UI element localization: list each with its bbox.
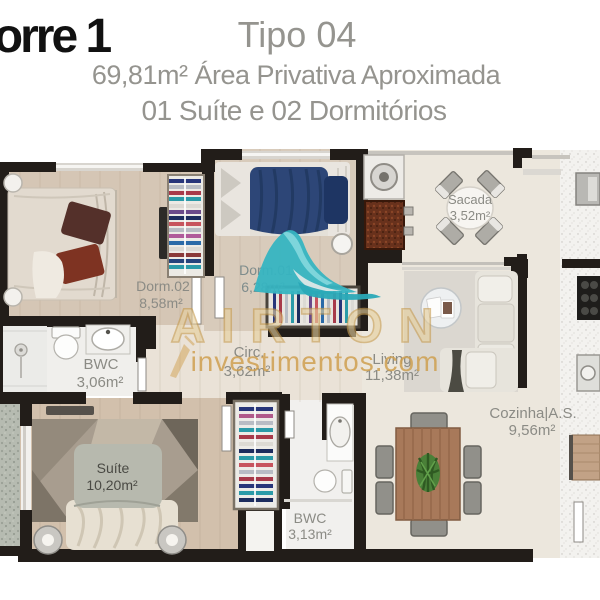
svg-text:3,13m²: 3,13m² <box>288 526 332 542</box>
svg-text:9,56m²: 9,56m² <box>509 422 556 439</box>
svg-text:Cozinha|A.S.: Cozinha|A.S. <box>489 405 576 422</box>
svg-text:Suíte: Suíte <box>97 460 130 476</box>
svg-text:investimentos.com: investimentos.com <box>191 346 440 377</box>
svg-text:Dorm.02: Dorm.02 <box>136 278 190 294</box>
svg-text:BWC: BWC <box>84 356 119 373</box>
svg-text:10,20m²: 10,20m² <box>86 477 138 493</box>
svg-text:01 Suíte e 02 Dormitórios: 01 Suíte e 02 Dormitórios <box>142 95 447 126</box>
svg-text:Sacada: Sacada <box>448 192 493 207</box>
svg-text:3,52m²: 3,52m² <box>450 208 491 223</box>
svg-text:3,06m²: 3,06m² <box>77 374 124 391</box>
svg-text:Tipo 04: Tipo 04 <box>238 14 357 55</box>
svg-text:BWC: BWC <box>294 510 327 526</box>
svg-text:Torre 1: Torre 1 <box>0 10 111 63</box>
svg-text:69,81m² Área Privativa Aproxim: 69,81m² Área Privativa Aproximada <box>92 60 502 90</box>
